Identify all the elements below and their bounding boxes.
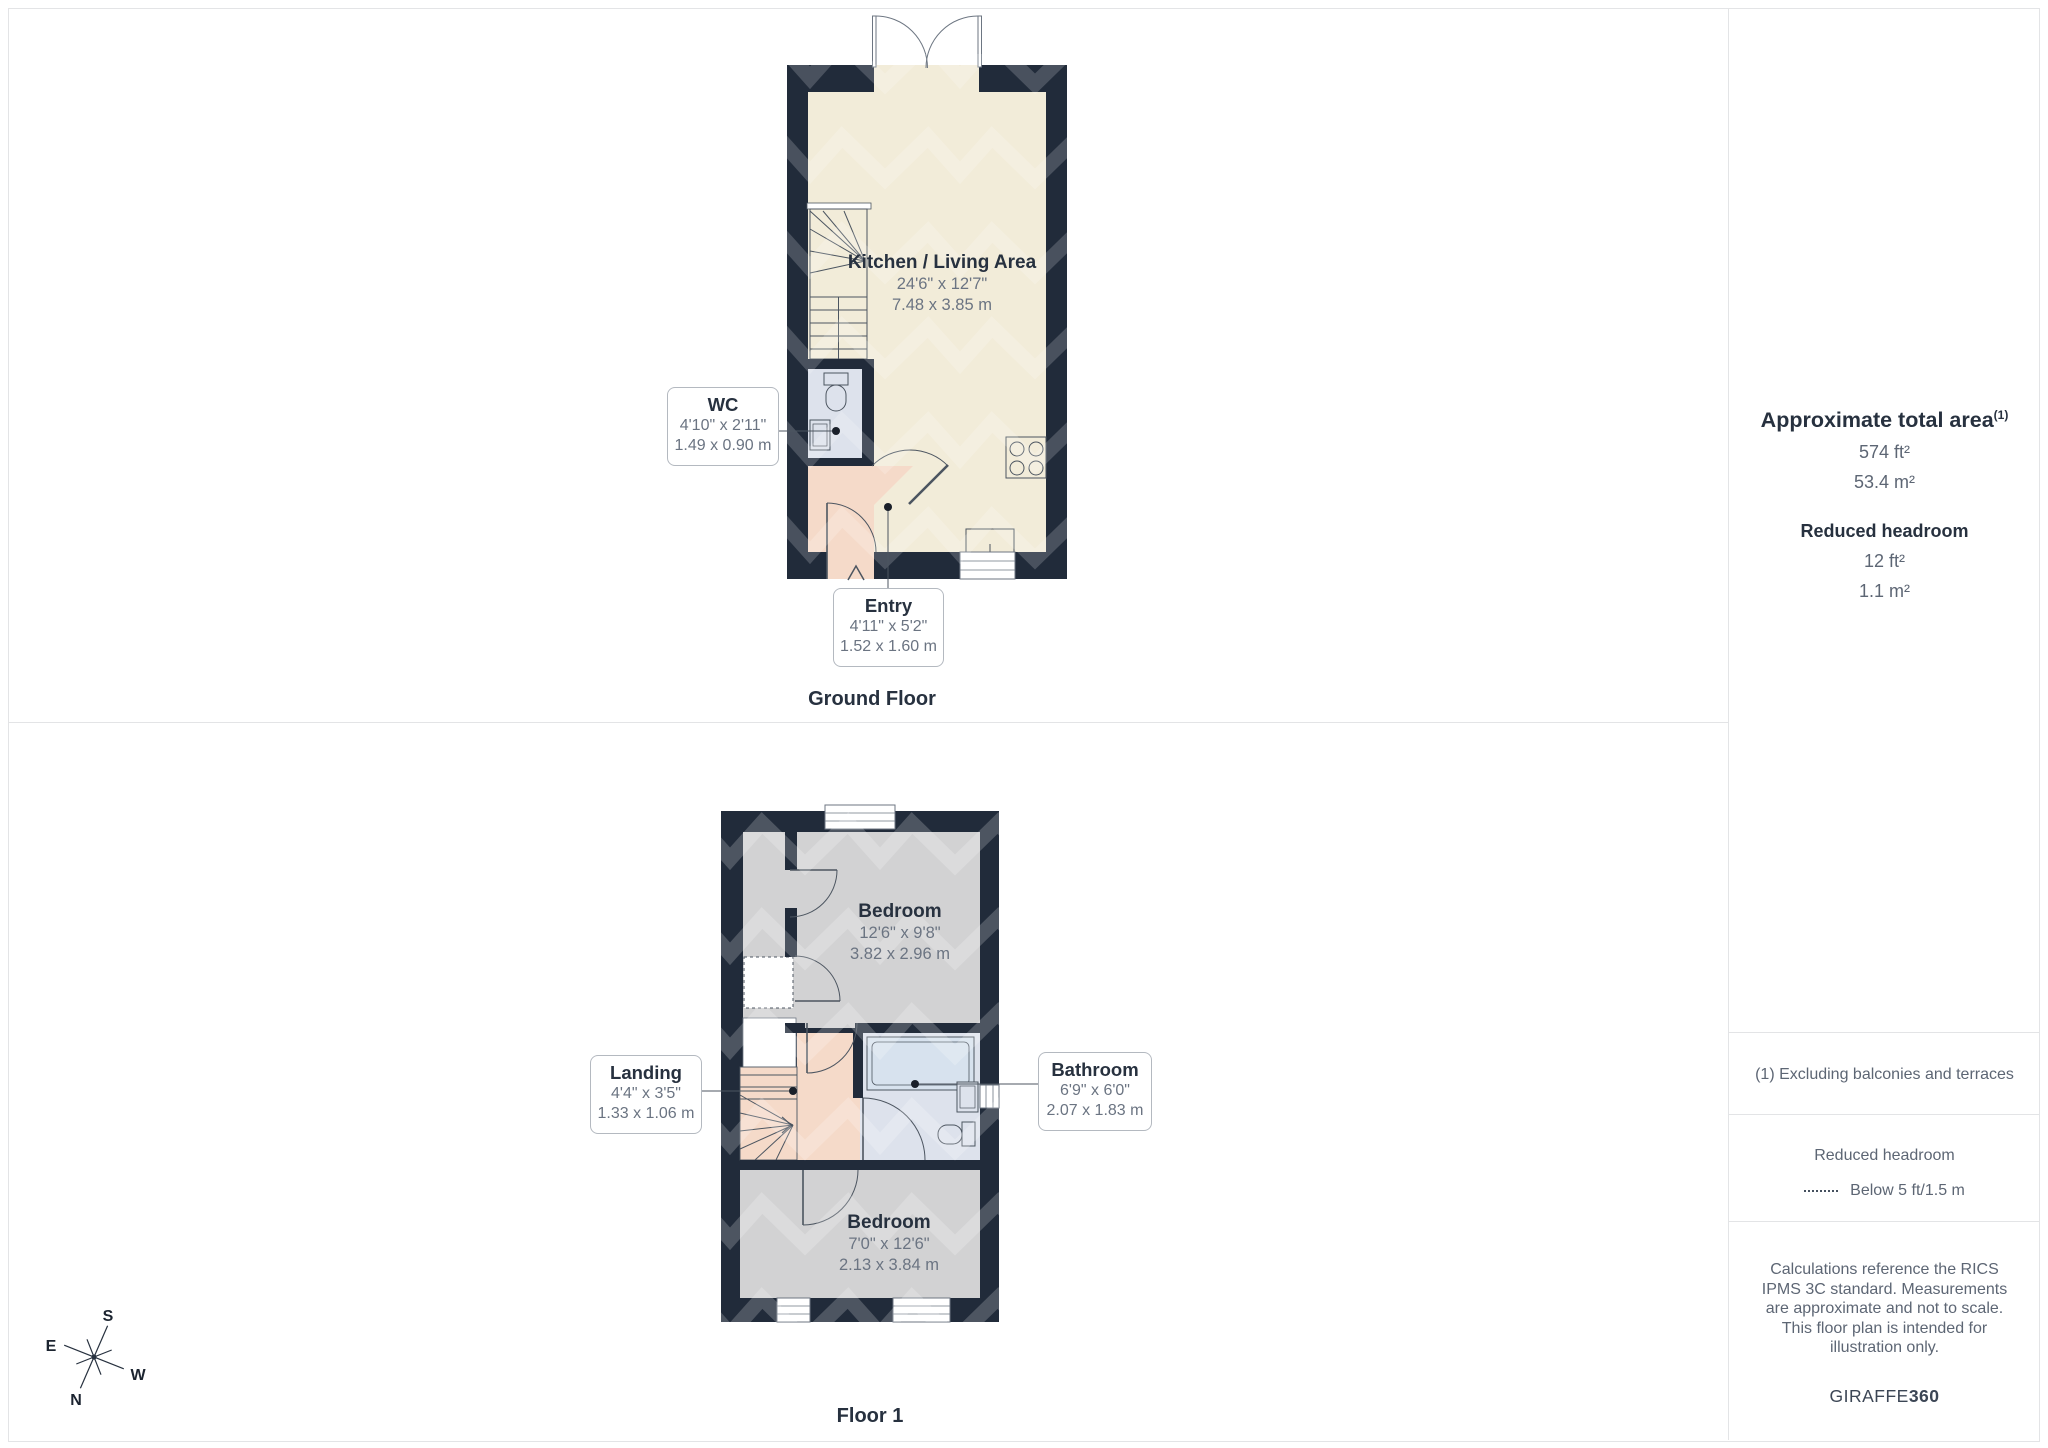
room-name: Bedroom	[839, 1212, 939, 1234]
room-dims-imperial: 4'4" x 3'5"	[595, 1084, 697, 1104]
sidebar: Approximate total area(1) 574 ft² 53.4 m…	[1729, 8, 2040, 1440]
reduced-headroom-m: 1.1 m²	[1729, 581, 2040, 602]
room-name: Entry	[838, 595, 939, 617]
area-summary: Approximate total area(1) 574 ft² 53.4 m…	[1729, 408, 2040, 602]
room-dims-imperial: 24'6" x 12'7"	[848, 274, 1036, 295]
room-dims-metric: 7.48 x 3.85 m	[848, 295, 1036, 316]
watermark	[787, 54, 1067, 579]
legend-title: Reduced headroom	[1729, 1147, 2040, 1165]
entry-tag: Entry 4'11" x 5'2" 1.52 x 1.60 m	[833, 588, 944, 667]
ground-floor-plan	[660, 14, 1160, 660]
brand-regular: GIRAFFE	[1829, 1386, 1908, 1406]
label-anchor-dot	[884, 503, 892, 511]
room-name: Kitchen / Living Area	[848, 252, 1036, 274]
brand-bold: 360	[1909, 1386, 1940, 1406]
disclaimer-text: Calculations reference the RICS IPMS 3C …	[1758, 1260, 2011, 1358]
landing-tag: Landing 4'4" x 3'5" 1.33 x 1.06 m	[590, 1055, 702, 1134]
floorplan-page: Kitchen / Living Area 24'6" x 12'7" 7.48…	[0, 0, 2048, 1448]
room-dims-metric: 1.52 x 1.60 m	[838, 637, 939, 657]
total-area-title-text: Approximate total area	[1761, 408, 1994, 432]
dotted-line-swatch	[1804, 1190, 1838, 1192]
room-name: Bedroom	[850, 901, 950, 923]
compass-north: N	[70, 1392, 82, 1409]
floors-divider	[9, 722, 1728, 723]
reduced-headroom-legend: Reduced headroom Below 5 ft/1.5 m	[1729, 1147, 2040, 1200]
room-dims-imperial: 12'6" x 9'8"	[850, 923, 950, 944]
room-dims-imperial: 7'0" x 12'6"	[839, 1234, 939, 1255]
kitchen-label: Kitchen / Living Area 24'6" x 12'7" 7.48…	[848, 252, 1036, 315]
legend-row: Below 5 ft/1.5 m	[1729, 1182, 2040, 1200]
room-dims-metric: 1.49 x 0.90 m	[672, 436, 774, 456]
bedroom-bottom-label: Bedroom 7'0" x 12'6" 2.13 x 3.84 m	[839, 1212, 939, 1275]
reduced-headroom-title: Reduced headroom	[1729, 521, 2040, 542]
room-name: Bathroom	[1043, 1059, 1147, 1081]
wc-tag: WC 4'10" x 2'11" 1.49 x 0.90 m	[667, 387, 779, 466]
total-area-ft: 574 ft²	[1729, 442, 2040, 463]
total-area-footnote-mark: (1)	[1994, 408, 2009, 422]
room-dims-metric: 3.82 x 2.96 m	[850, 944, 950, 965]
room-dims-metric: 2.13 x 3.84 m	[839, 1255, 939, 1276]
label-anchor-dot	[789, 1087, 797, 1095]
floor-1-title: Floor 1	[837, 1405, 904, 1428]
brand-logo: GIRAFFE360	[1729, 1386, 2040, 1407]
legend-label: Below 5 ft/1.5 m	[1850, 1182, 1965, 1199]
room-dims-imperial: 4'11" x 5'2"	[838, 617, 939, 637]
compass-east: E	[46, 1338, 57, 1355]
compass-rose-icon: S E W N	[20, 1295, 170, 1435]
compass-west: W	[130, 1367, 146, 1384]
bathroom-tag: Bathroom 6'9" x 6'0" 2.07 x 1.83 m	[1038, 1052, 1152, 1131]
room-dims-metric: 1.33 x 1.06 m	[595, 1104, 697, 1124]
compass-center-dot	[91, 1354, 96, 1359]
total-area-title: Approximate total area(1)	[1729, 408, 2040, 433]
area-footnote: (1) Excluding balconies and terraces	[1729, 1066, 2040, 1084]
room-name: Landing	[595, 1062, 697, 1084]
compass-south: S	[103, 1308, 114, 1325]
bedroom-top-label: Bedroom 12'6" x 9'8" 3.82 x 2.96 m	[850, 901, 950, 964]
room-dims-imperial: 4'10" x 2'11"	[672, 416, 774, 436]
room-name: WC	[672, 394, 774, 416]
room-dims-metric: 2.07 x 1.83 m	[1043, 1101, 1147, 1121]
label-anchor-dot	[911, 1080, 919, 1088]
ground-floor-title: Ground Floor	[808, 688, 936, 711]
reduced-headroom-ft: 12 ft²	[1729, 551, 2040, 572]
label-anchor-dot	[832, 427, 840, 435]
room-dims-imperial: 6'9" x 6'0"	[1043, 1081, 1147, 1101]
total-area-m: 53.4 m²	[1729, 472, 2040, 493]
